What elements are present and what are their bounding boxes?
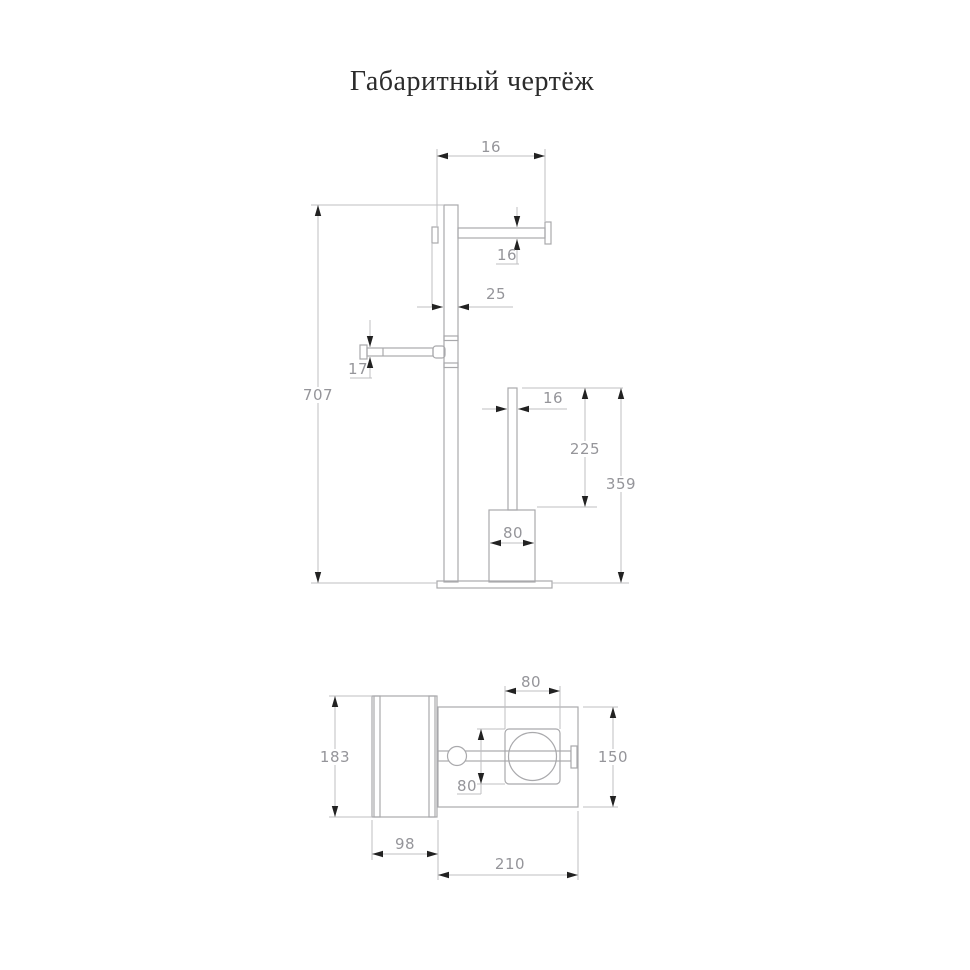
pole-circle-top (448, 747, 467, 766)
dim-label-cup-top-width: 80 (521, 673, 541, 691)
arrowhead (549, 688, 560, 694)
stand-pole (444, 205, 458, 582)
cup-housing-top (505, 729, 560, 784)
arrowhead (496, 406, 507, 412)
arrowhead (315, 205, 321, 216)
dim-label-roll-width: 98 (395, 835, 415, 853)
dim-label-arm-length: 16 (481, 138, 501, 156)
drawing-title: Габаритный чертёж (350, 66, 594, 97)
dim-label-brush-handle-diameter: 16 (543, 389, 563, 407)
plan-view (372, 696, 578, 817)
dim-label-brush-handle-height: 225 (570, 440, 600, 458)
dimensional-drawing-canvas: Габаритный чертёж 16 16 (0, 0, 970, 970)
brush-cup (489, 510, 535, 582)
cup-circle-top (509, 733, 557, 781)
paper-holder-arm (458, 228, 545, 238)
arrowhead (610, 796, 616, 807)
paper-roll-top (372, 696, 437, 817)
paper-holder-end-cap (545, 222, 551, 244)
arrowhead (332, 696, 338, 707)
arrowhead (523, 540, 534, 546)
arrowhead (367, 336, 373, 347)
dimensional-drawing-page: Габаритный чертёж 16 16 (0, 0, 970, 970)
arm-end-cap-top (571, 746, 577, 768)
arrowhead (582, 388, 588, 399)
front-view (360, 205, 552, 588)
pole-upper-collar (444, 336, 458, 341)
arrowhead (478, 729, 484, 740)
dim-label-cup-width: 80 (503, 524, 523, 542)
dim-label-total-height: 707 (303, 386, 333, 404)
dim-label-cup-top-depth: 80 (457, 777, 477, 795)
arrowhead (332, 806, 338, 817)
dim-label-brush-total-height: 359 (606, 475, 636, 493)
arrowhead (505, 688, 516, 694)
dim-label-roll-depth: 183 (320, 748, 350, 766)
arrowhead (458, 304, 469, 310)
spare-arm-end-cap (360, 345, 367, 359)
arrowhead (534, 153, 545, 159)
arrowhead (490, 540, 501, 546)
plan-view-dimensions: 183 80 80 150 98 210 (318, 673, 629, 880)
arrowhead (618, 572, 624, 583)
spare-arm-mount (433, 346, 445, 358)
arrowhead (437, 153, 448, 159)
dim-label-base-length: 210 (495, 855, 525, 873)
brush-handle (508, 388, 517, 510)
arrowhead (610, 707, 616, 718)
pole-lower-collar (444, 363, 458, 368)
arrowhead (567, 872, 578, 878)
arrowhead (372, 851, 383, 857)
spare-arm-bar (367, 348, 433, 356)
arrowhead (427, 851, 438, 857)
arrowhead (315, 572, 321, 583)
arrowhead (438, 872, 449, 878)
arrowhead (514, 216, 520, 227)
arrowhead (518, 406, 529, 412)
arrowhead (582, 496, 588, 507)
arrowhead (432, 304, 443, 310)
paper-roll-right-band (429, 696, 435, 817)
paper-roll-left-band (374, 696, 380, 817)
dim-label-pole-width: 25 (486, 285, 506, 303)
paper-holder-left-mount (432, 227, 438, 243)
front-view-dimensions: 16 16 25 17 707 16 (301, 138, 639, 583)
dim-label-left-arm-diameter: 17 (348, 360, 368, 378)
dim-label-base-depth: 150 (598, 748, 628, 766)
arrowhead (618, 388, 624, 399)
dim-label-arm-diameter: 16 (497, 246, 517, 264)
arrowhead (478, 773, 484, 784)
